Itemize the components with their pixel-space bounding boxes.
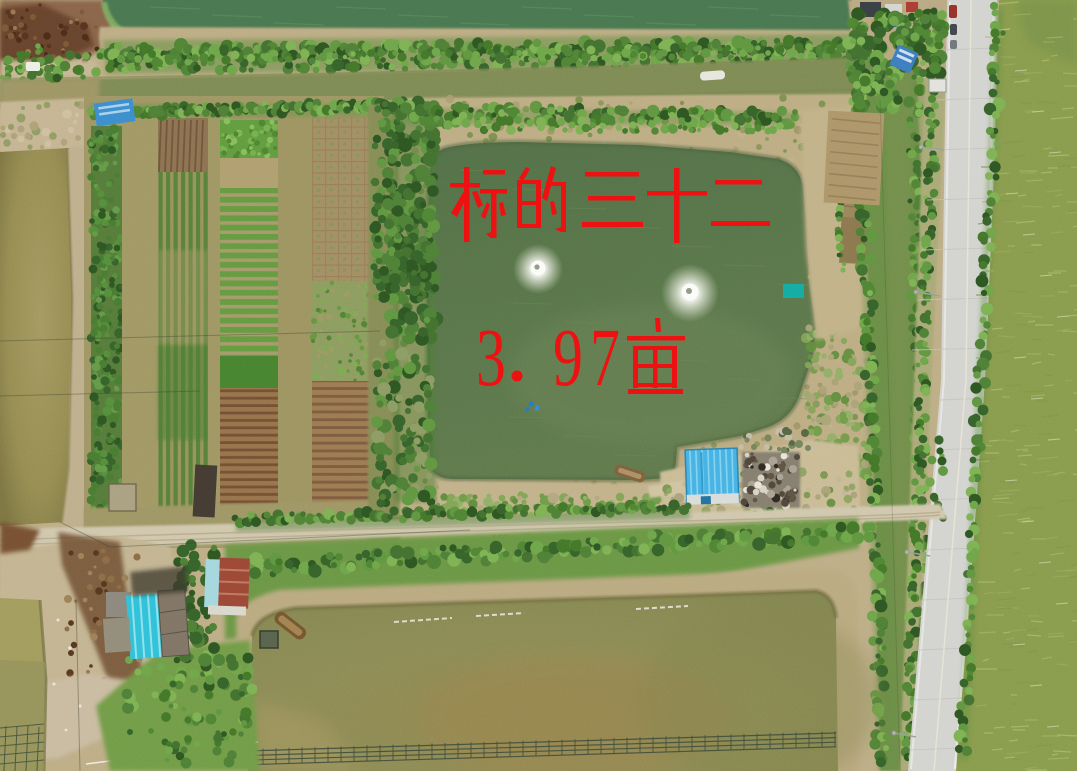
svg-text:7: 7 — [590, 312, 620, 404]
svg-text:3: 3 — [476, 312, 506, 404]
svg-text:9: 9 — [553, 312, 583, 404]
